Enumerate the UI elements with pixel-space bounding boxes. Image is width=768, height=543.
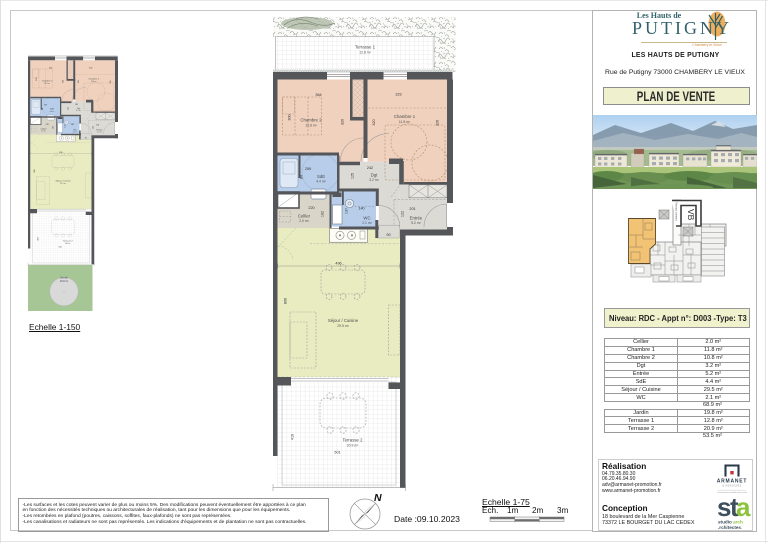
svg-text:Terrasse 1: Terrasse 1 <box>355 45 376 50</box>
svg-text:12.8 m²: 12.8 m² <box>359 51 371 55</box>
